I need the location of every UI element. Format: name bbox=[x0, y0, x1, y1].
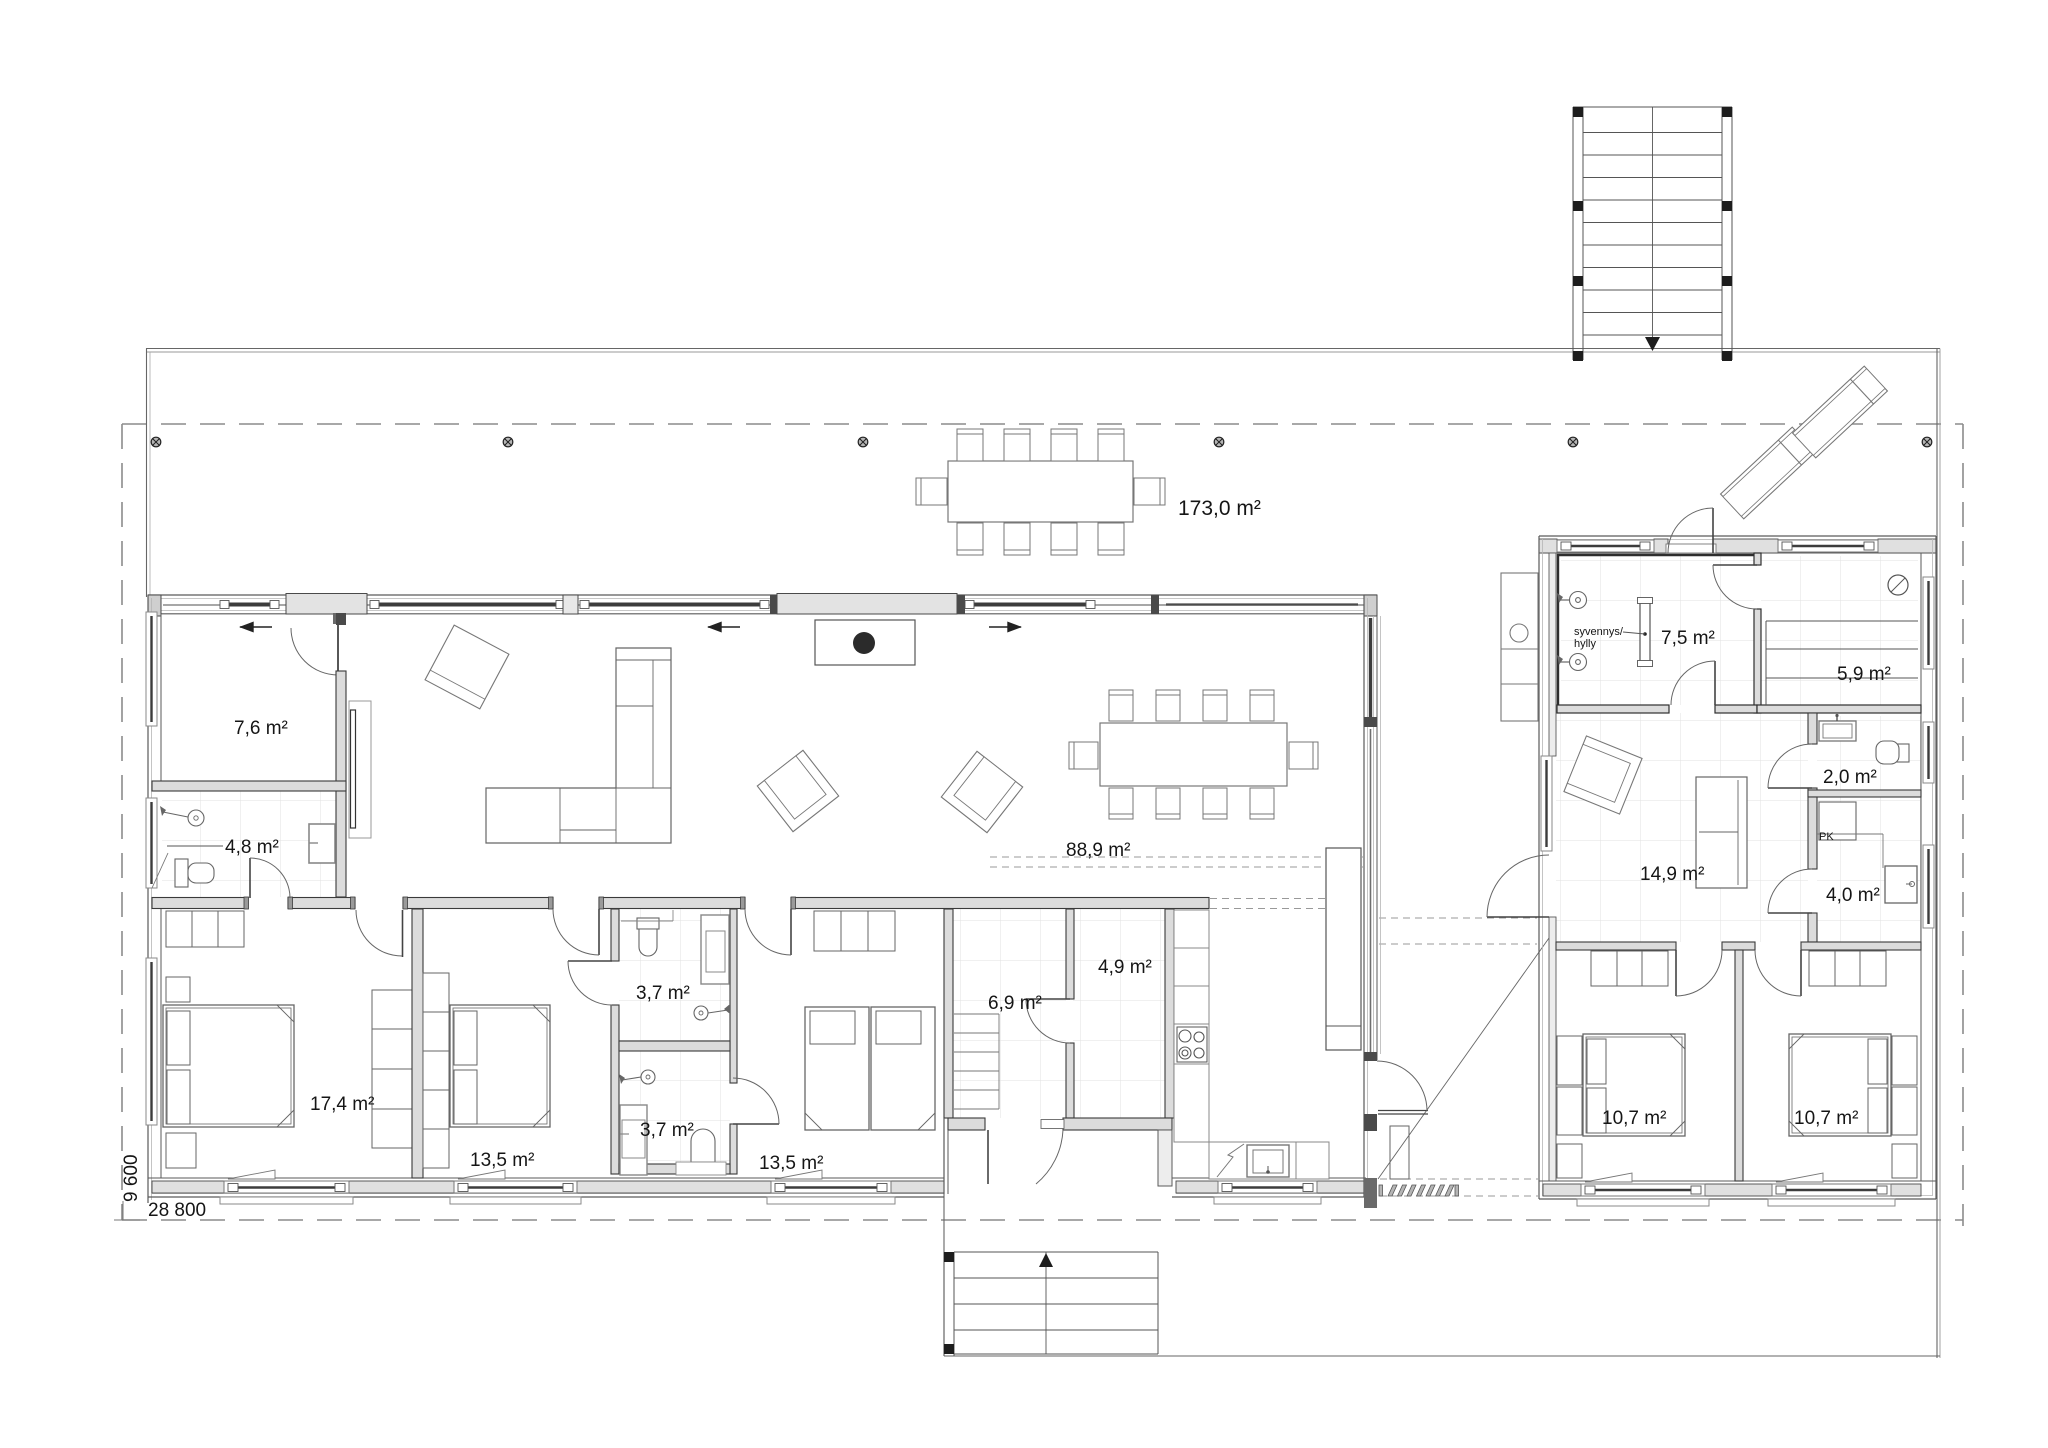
svg-text:28 800: 28 800 bbox=[148, 1200, 206, 1221]
svg-text:PK: PK bbox=[1819, 831, 1834, 843]
svg-text:173,0 m²: 173,0 m² bbox=[1178, 497, 1261, 520]
svg-text:9 600: 9 600 bbox=[121, 1154, 142, 1202]
svg-text:88,9 m²: 88,9 m² bbox=[1066, 840, 1130, 861]
svg-text:10,7 m²: 10,7 m² bbox=[1602, 1108, 1666, 1129]
svg-text:7,6 m²: 7,6 m² bbox=[234, 718, 288, 739]
svg-text:3,7 m²: 3,7 m² bbox=[636, 983, 690, 1004]
svg-text:4,9 m²: 4,9 m² bbox=[1098, 957, 1152, 978]
svg-text:4,8 m²: 4,8 m² bbox=[225, 837, 279, 858]
svg-text:2,0 m²: 2,0 m² bbox=[1823, 767, 1877, 788]
svg-text:13,5 m²: 13,5 m² bbox=[759, 1153, 823, 1174]
svg-text:5,9 m²: 5,9 m² bbox=[1837, 664, 1891, 685]
svg-text:4,0 m²: 4,0 m² bbox=[1826, 885, 1880, 906]
svg-text:3,7 m²: 3,7 m² bbox=[640, 1120, 694, 1141]
svg-text:hylly: hylly bbox=[1574, 638, 1597, 650]
svg-text:7,5 m²: 7,5 m² bbox=[1661, 628, 1715, 649]
svg-text:syvennys/: syvennys/ bbox=[1574, 626, 1624, 638]
svg-text:17,4 m²: 17,4 m² bbox=[310, 1094, 374, 1115]
svg-text:6,9 m²: 6,9 m² bbox=[988, 993, 1042, 1014]
svg-text:10,7 m²: 10,7 m² bbox=[1794, 1108, 1858, 1129]
svg-text:14,9 m²: 14,9 m² bbox=[1640, 864, 1704, 885]
svg-text:13,5 m²: 13,5 m² bbox=[470, 1150, 534, 1171]
